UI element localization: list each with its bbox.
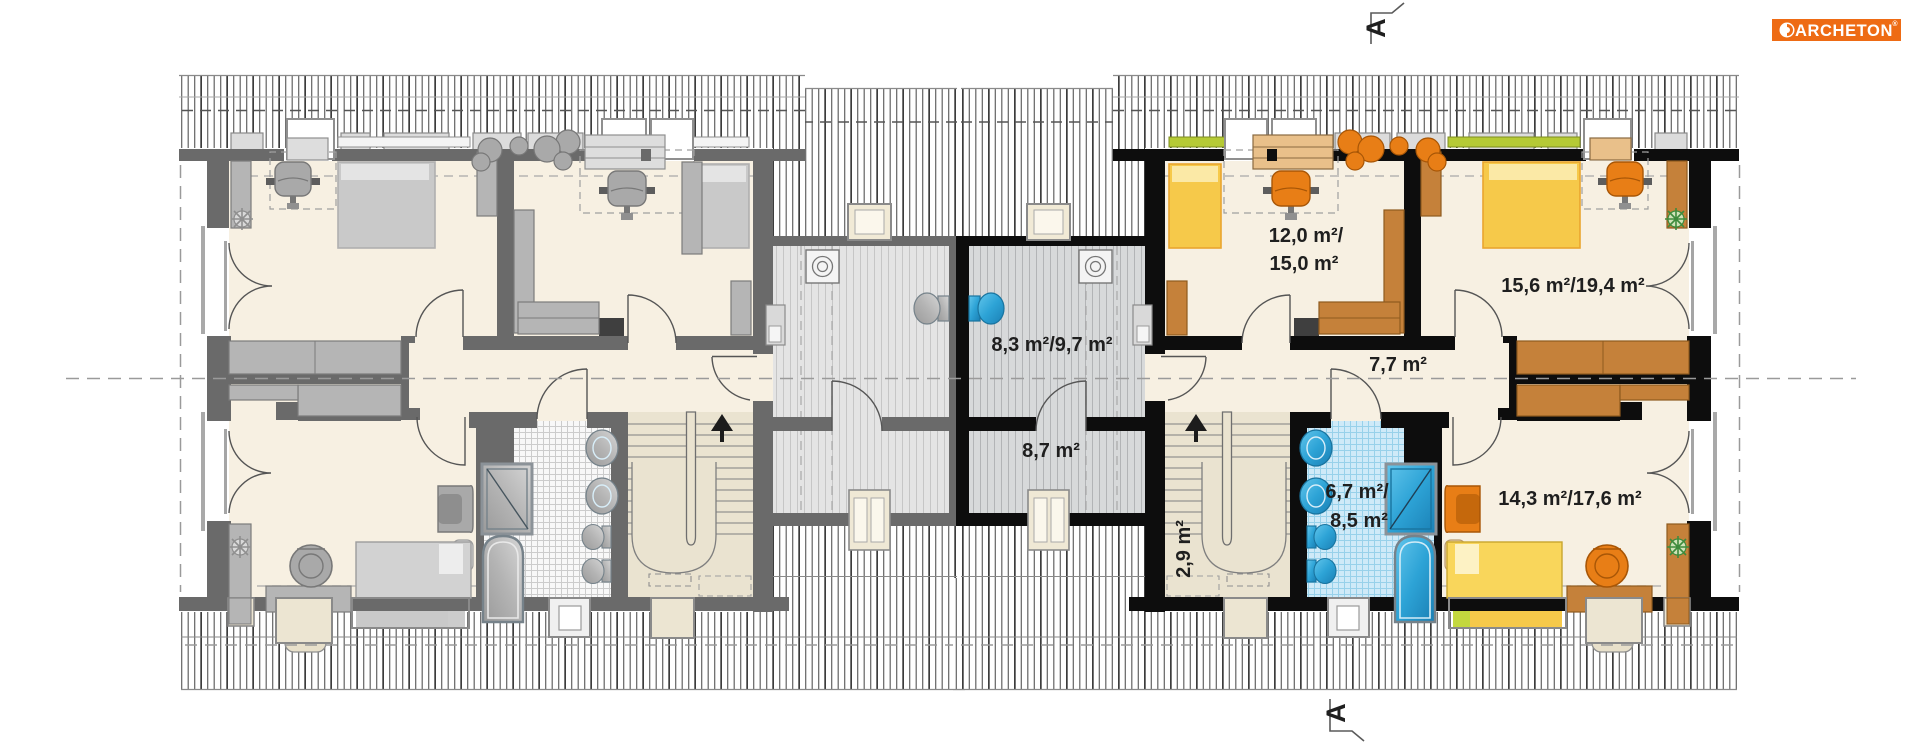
svg-text:8,3 m²/9,7 m²: 8,3 m²/9,7 m²: [991, 334, 1113, 356]
svg-text:12,0 m²/: 12,0 m²/: [1269, 225, 1344, 247]
svg-text:8,7 m²: 8,7 m²: [1022, 440, 1080, 462]
svg-text:2,9 m²: 2,9 m²: [1173, 520, 1195, 578]
svg-text:15,0 m²: 15,0 m²: [1270, 253, 1339, 275]
svg-text:8,5 m²: 8,5 m²: [1330, 510, 1388, 532]
svg-text:7,7 m²: 7,7 m²: [1369, 354, 1427, 376]
svg-text:15,6 m²/19,4 m²: 15,6 m²/19,4 m²: [1501, 275, 1645, 297]
svg-text:®: ®: [1892, 20, 1898, 28]
svg-text:ARCHETON: ARCHETON: [1795, 22, 1893, 40]
svg-text:6,7 m²/: 6,7 m²/: [1325, 481, 1389, 503]
svg-text:14,3 m²/17,6 m²: 14,3 m²/17,6 m²: [1498, 488, 1642, 510]
svg-text:A: A: [1361, 18, 1391, 38]
svg-text:A: A: [1321, 703, 1351, 723]
